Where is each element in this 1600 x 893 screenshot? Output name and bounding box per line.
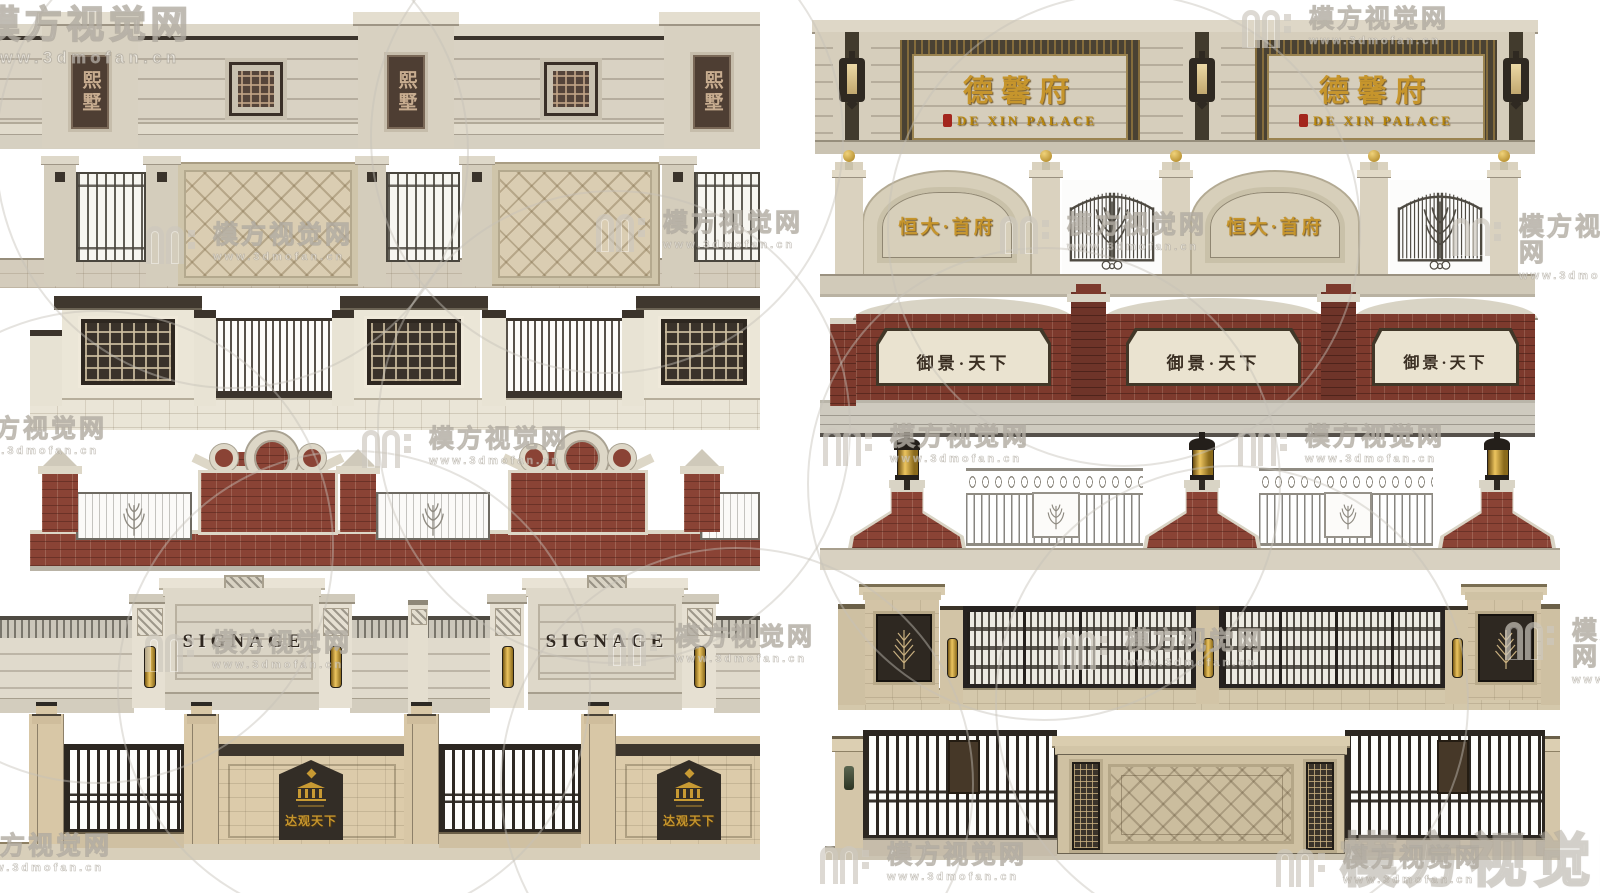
watermark-url: www.3dmofan.cn: [0, 51, 193, 68]
finial-neck: [845, 162, 853, 170]
watermark: 模方视觉网www.3dmofan.cn: [146, 222, 353, 266]
mofang-logo-icon: [1238, 424, 1296, 468]
ball-finial: [1498, 150, 1510, 162]
watermark-brand: 模方视觉网: [429, 426, 569, 452]
brick-buttress: [1438, 488, 1556, 548]
lantern-glass: [1511, 64, 1521, 94]
watermark-url: www.3dmofan.cn: [887, 872, 1027, 884]
watermark-brand: 模方视觉网: [663, 210, 803, 236]
lantern-post: [1494, 480, 1500, 490]
watermark: 模方视觉网www.3dmofan.cn: [608, 624, 815, 668]
watermark-brand: 模方视觉网: [887, 842, 1027, 868]
mofang-logo-icon: [596, 210, 654, 254]
mofang-logo-icon: [362, 426, 420, 470]
watermark-brand: 模方视觉网: [1519, 214, 1600, 267]
ball-finial: [843, 150, 855, 162]
mofang-logo-icon: [1452, 214, 1510, 258]
watermark: 模方视觉网www.3dmofan.cn: [1242, 6, 1449, 50]
watermark: 模方视觉网www.3dmofan.cn: [362, 426, 569, 470]
watermark-url: www.3dmofan.cn: [890, 454, 1030, 466]
watermark: 模方视觉网www.3dmofan.cn: [1058, 628, 1265, 672]
mofang-logo-icon: [608, 624, 666, 668]
watermark-url: www.3dmofan.cn: [1305, 454, 1445, 466]
mofang-logo-icon: [820, 842, 878, 886]
watermark-large: 模方视觉网: [1340, 832, 1600, 892]
watermark-brand: 模方视觉网: [0, 833, 112, 859]
post-lantern: [1475, 432, 1519, 490]
mofang-logo-icon: [146, 222, 204, 266]
watermark-url: www.3dmofan.cn: [1067, 242, 1207, 254]
watermark-brand: 模方视觉网: [1572, 618, 1600, 671]
watermark: 模方视觉网www.3dmofan.cn: [1452, 214, 1600, 282]
mofang-logo-icon: [1276, 845, 1334, 889]
lantern-pier: [1497, 32, 1535, 140]
lantern-finial: [849, 51, 855, 58]
watermark-brand: 模方视觉网: [1340, 832, 1600, 892]
pillar-cap: [1465, 592, 1543, 600]
watermark-url: www.3dmofan.cn: [429, 456, 569, 468]
watermark-brand: 模方视觉网: [1305, 424, 1445, 450]
dexin-title: 德馨府: [1319, 66, 1433, 110]
watermark-brand: 模方视觉网: [212, 630, 352, 656]
fence-design-collage: 熙墅 熙墅 熙墅: [0, 0, 1600, 893]
watermark: 模方视觉网www.3dmofan.cn: [1505, 618, 1600, 686]
mofang-logo-icon: [1000, 212, 1058, 256]
watermark-url: www.3dmofan.cn: [663, 240, 803, 252]
watermark-brand: 模方视觉网: [890, 424, 1030, 450]
watermark-brand: 模方视觉网: [0, 416, 107, 442]
sign-panel-frame: 御景·天下: [1372, 328, 1519, 386]
finial-neck: [1500, 162, 1508, 170]
pillar-cap: [1487, 170, 1521, 178]
lantern-glass: [847, 64, 857, 94]
buttress-brick: [1442, 492, 1552, 548]
watermark-url: www.3dmofan.cn: [0, 863, 112, 875]
watermark-brand: 模方视觉网: [0, 6, 193, 45]
watermark-url: www.3dmofan.cn: [1309, 36, 1449, 48]
lantern-finial: [1513, 51, 1519, 58]
mofang-logo-icon: [1058, 628, 1116, 672]
finial-pillar: [1360, 162, 1388, 274]
watermark-url: www.3dmofan.cn: [212, 660, 352, 672]
watermark: 模方视觉网www.3dmofan.cn: [820, 842, 1027, 886]
watermark-brand: 模方视觉网: [675, 624, 815, 650]
watermark-url: www.3dmofan.cn: [213, 252, 353, 264]
yujing-title: 御景·天下: [1403, 341, 1487, 373]
watermark: 模方视觉网www.3dmofan.cn: [823, 424, 1030, 468]
mofang-logo-icon: [1505, 618, 1563, 662]
pillar-cap: [1357, 170, 1391, 178]
wall-lantern: [839, 58, 865, 102]
finial-neck: [1370, 162, 1378, 170]
watermark: 模方视觉网www.3dmofan.cn: [596, 210, 803, 254]
watermark: 模方视觉网www.3dmofan.cn: [1238, 424, 1445, 468]
watermark: 模方视觉网www.3dmofan.cn: [0, 6, 193, 72]
watermark-brand: 模方视觉网: [1125, 628, 1265, 654]
watermark-url: www.3dmofan.cn: [1125, 658, 1265, 670]
lantern-body: [1487, 449, 1509, 477]
watermark-url: www.3dmofan.cn: [0, 446, 107, 458]
watermark: 模方视觉网www.3dmofan.cn: [145, 630, 352, 674]
wall-lantern: [1503, 58, 1529, 102]
watermark-brand: 模方视觉网: [1309, 6, 1449, 32]
mofang-logo-icon: [1242, 6, 1300, 50]
watermark: 模方视觉网www.3dmofan.cn: [0, 416, 107, 460]
watermark-url: www.3dmofan.cn: [675, 654, 815, 666]
watermark-brand: 模方视觉网: [213, 222, 353, 248]
mofang-logo-icon: [145, 630, 203, 674]
watermark-url: www.3dmofan.cn: [1572, 675, 1600, 687]
brick-sign-section: 御景·天下: [1356, 298, 1535, 400]
watermark-url: www.3dmofan.cn: [1519, 271, 1600, 283]
watermark-brand: 模方视觉网: [1067, 212, 1207, 238]
sign-panel: 御景·天下: [1375, 331, 1516, 383]
ball-finial: [1368, 150, 1380, 162]
mofang-logo-icon: [823, 424, 881, 468]
watermark: 模方视觉网www.3dmofan.cn: [1000, 212, 1207, 256]
watermark: 模方视觉网www.3dmofan.cn: [0, 833, 112, 877]
